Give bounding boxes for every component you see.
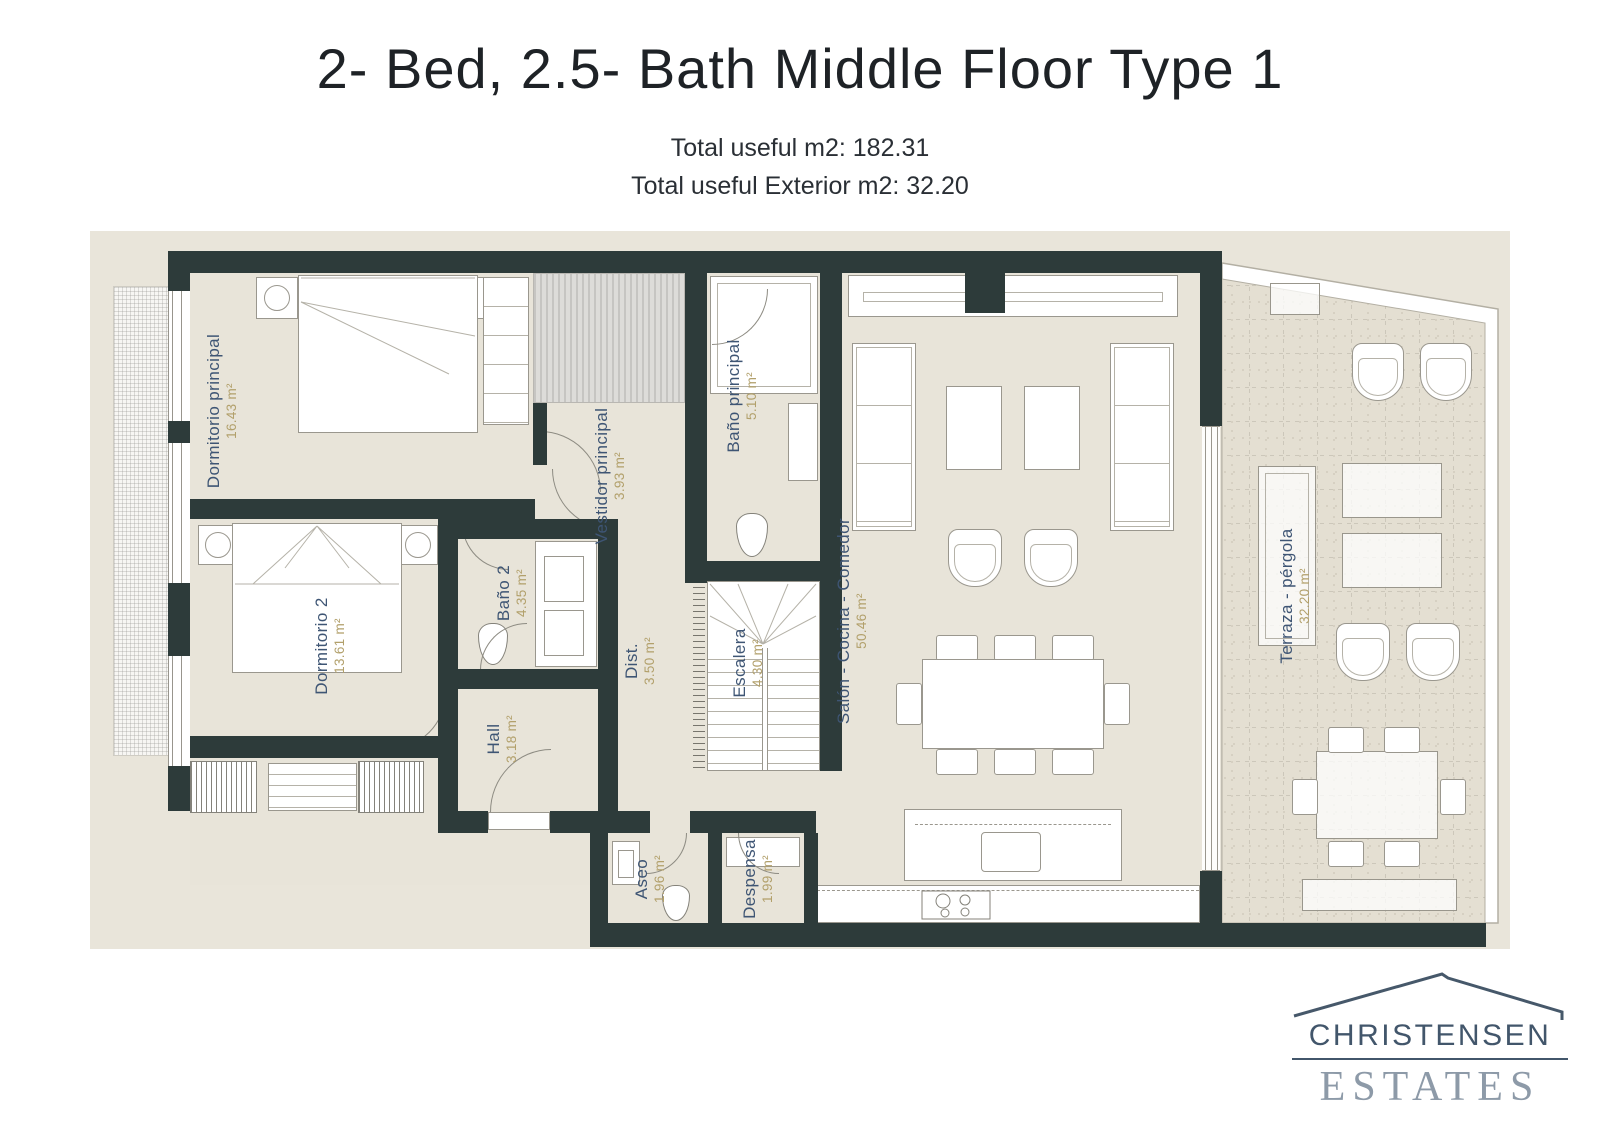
shutter-window (190, 761, 257, 813)
dining-chair (936, 749, 978, 775)
wall-service-top (690, 811, 816, 833)
bath2-vanity (535, 541, 597, 667)
logo-divider (1292, 1058, 1568, 1060)
wall-hall-right (598, 519, 618, 833)
room-label-escalera: Escalera4.30 m² (729, 628, 767, 697)
wall-mainbath-bottom (685, 561, 820, 581)
total-exterior-text: Total useful Exterior m2: 32.20 (0, 172, 1600, 201)
terrace-chair (1328, 841, 1364, 867)
wall-column (965, 273, 1005, 313)
terrace-lounger-2 (1342, 533, 1442, 588)
terrace-armchair-4 (1406, 623, 1460, 681)
tub-chair (948, 529, 1002, 587)
room-label-salon-cocina-comedor: Salón - Cocina - Comedor50.46 m² (833, 518, 871, 724)
nightstand (398, 525, 438, 565)
vestidor-wardrobe-hatch (533, 273, 685, 403)
kitchen-island (904, 809, 1122, 881)
dining-chair (994, 749, 1036, 775)
terrace-chair (1440, 779, 1466, 815)
room-label-bano-2: Baño 24.35 m² (493, 565, 531, 621)
terrace-armchair-2 (1420, 343, 1472, 401)
room-label-aseo: Aseo1.96 m² (631, 855, 669, 903)
page-title: 2- Bed, 2.5- Bath Middle Floor Type 1 (0, 36, 1600, 101)
wall-bedroom2-right (438, 499, 458, 833)
terrace-armchair-3 (1336, 623, 1390, 681)
sofa-left (852, 343, 916, 531)
tub-chair (1024, 529, 1078, 587)
window (168, 656, 190, 766)
kitchen-counter-top (848, 275, 1178, 317)
wall-salon-right-bottom (1200, 871, 1222, 947)
total-useful-text: Total useful m2: 182.31 (0, 134, 1600, 163)
dining-chair (896, 683, 922, 725)
wall-aseo-despensa (708, 833, 722, 923)
wall-aseo-left (590, 811, 608, 923)
wall-bath2-bottom (458, 669, 618, 689)
wall-bedroom2-bottom (168, 736, 458, 758)
christensen-estates-logo: CHRISTENSEN ESTATES (1290, 968, 1570, 1111)
stairs-hatch (693, 581, 705, 771)
armchair (946, 386, 1002, 470)
shutter-window (358, 761, 424, 813)
wall-entry-left (438, 811, 488, 833)
window (168, 291, 190, 421)
nightstand (256, 277, 298, 319)
terrace-chair (1292, 779, 1318, 815)
logo-line1: CHRISTENSEN (1290, 1019, 1570, 1053)
bed-principal (298, 275, 478, 433)
terrace-dining-table (1316, 751, 1438, 839)
armchair (1024, 386, 1080, 470)
wardrobe-principal (483, 277, 529, 425)
main-bath-sink (788, 403, 818, 481)
entry-door (488, 812, 550, 830)
room-label-dormitorio-principal: Dormitorio principal16.43 m² (203, 334, 241, 488)
room-label-dist: Dist.3.50 m² (621, 637, 659, 685)
window (168, 443, 190, 583)
dining-chair (1052, 749, 1094, 775)
dining-table (922, 659, 1104, 749)
wall-salon-right-top (1200, 251, 1222, 426)
wall-vestidor-stub (533, 403, 547, 465)
terrace-lounger-1 (1342, 463, 1442, 518)
window-sill (268, 763, 357, 811)
dining-chair (994, 635, 1036, 661)
terrace-planter-top (1270, 283, 1320, 315)
wall-top (168, 251, 1222, 273)
wall-despensa-right (804, 833, 818, 923)
left-balcony-hatch (113, 286, 169, 756)
roof-icon (1290, 968, 1570, 1020)
terrace-sliding-door (1202, 426, 1220, 871)
dining-chair (1104, 683, 1130, 725)
room-label-dormitorio-2: Dormitorio 213.61 m² (311, 597, 349, 694)
wall-bottom (590, 923, 1486, 947)
room-label-despensa: Despensa1.99 m² (739, 839, 777, 919)
room-label-vestidor-principal: Vestidor principal3.93 m² (591, 408, 629, 545)
room-label-bano-principal: Baño principal5.10 m² (723, 339, 761, 452)
logo-line2: ESTATES (1290, 1063, 1570, 1111)
floor-plan: Dormitorio principal16.43 m² Dormitorio … (90, 231, 1510, 949)
sofa-right (1110, 343, 1174, 531)
terrace-chair (1328, 727, 1364, 753)
room-label-terraza-pergola: Terraza - pérgola32.20 m² (1276, 528, 1314, 663)
terrace-chair (1384, 841, 1420, 867)
room-label-hall: Hall3.18 m² (483, 715, 521, 763)
terrace-armchair-1 (1352, 343, 1404, 401)
dining-chair (936, 635, 978, 661)
wall-vestidor-right (685, 273, 707, 583)
kitchen-counter-bottom (816, 885, 1200, 923)
wall-bedrooms-divider (190, 499, 535, 519)
terrace-chair (1384, 727, 1420, 753)
dining-chair (1052, 635, 1094, 661)
terrace-planter-bottom (1302, 879, 1457, 911)
